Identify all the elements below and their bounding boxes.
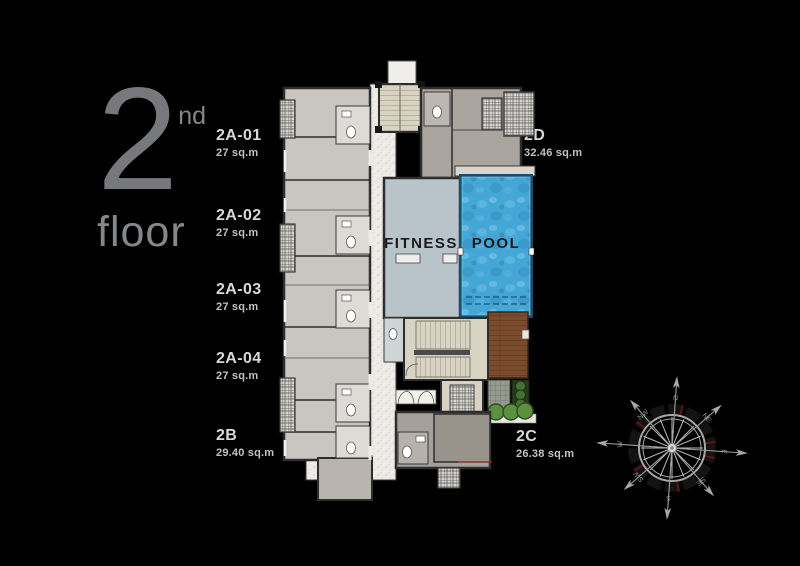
floorplan-page: 2nd floor 2A-01 27 sq.m 2A-02 27 sq.m 2A… [0,0,800,566]
fitness-label: FITNESS [384,235,458,252]
unit-strip [280,88,372,500]
compass-n: N [673,395,679,402]
pool-label: POOL [472,235,521,252]
unit-2d [421,88,534,178]
compass-w: W [617,440,624,447]
compass-e: E [720,449,727,454]
top-stairwell [375,61,425,133]
stair-hall [404,318,488,380]
floor-plan-drawing: FITNESS POOL [0,0,800,566]
compass-rose: N NE E SE [596,376,748,520]
wood-deck [488,312,529,378]
compass-s: S [666,494,671,501]
unit-2c [396,412,492,488]
pool: POOL [455,166,535,318]
garden-area [486,380,536,423]
